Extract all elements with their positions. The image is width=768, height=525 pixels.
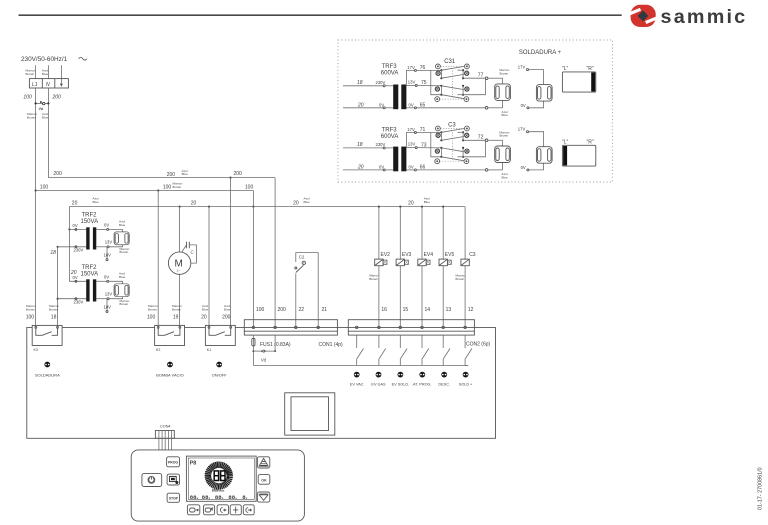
svg-text:Brown: Brown <box>120 302 129 306</box>
svg-text:20: 20 <box>293 200 299 206</box>
svg-text:13V: 13V <box>105 291 113 296</box>
svg-text:Brown: Brown <box>173 185 182 189</box>
svg-text:TRF3: TRF3 <box>382 128 398 134</box>
svg-text:EV5: EV5 <box>445 252 455 258</box>
svg-text:17V: 17V <box>407 127 415 132</box>
svg-text:EV4: EV4 <box>424 252 434 258</box>
svg-text:18V: 18V <box>104 305 112 310</box>
svg-text:Blue: Blue <box>42 72 48 76</box>
svg-text:230V: 230V <box>376 142 386 147</box>
svg-text:230V: 230V <box>74 248 84 253</box>
svg-text:Brown: Brown <box>148 307 157 311</box>
svg-text:C3: C3 <box>448 123 456 129</box>
svg-text:Blue: Blue <box>93 200 99 204</box>
svg-text:Blue: Blue <box>304 200 310 204</box>
svg-text:0V: 0V <box>73 275 78 280</box>
svg-text:C31: C31 <box>444 59 456 65</box>
svg-text:EV3: EV3 <box>402 252 412 258</box>
svg-text:0V: 0V <box>521 165 526 170</box>
svg-text:"L": "L" <box>562 140 569 146</box>
svg-text:Brown: Brown <box>500 134 509 138</box>
svg-text:20: 20 <box>408 200 414 206</box>
svg-text:CON2 (6p): CON2 (6p) <box>466 342 491 348</box>
svg-text:0V: 0V <box>409 102 414 107</box>
svg-text:L1: L1 <box>32 82 38 88</box>
svg-text:K1: K1 <box>207 348 211 352</box>
svg-text:230V/50-60Hz/1: 230V/50-60Hz/1 <box>21 56 68 63</box>
svg-text:PROG: PROG <box>168 461 178 465</box>
svg-text:72: 72 <box>478 135 484 141</box>
svg-text:ON/OFF: ON/OFF <box>212 373 228 378</box>
svg-text:Vd: Vd <box>261 358 267 363</box>
svg-text:0V: 0V <box>104 274 109 279</box>
svg-text:73: 73 <box>421 142 427 148</box>
svg-text:20: 20 <box>72 200 78 206</box>
svg-text:18: 18 <box>50 250 56 256</box>
svg-text:K3: K3 <box>34 348 38 352</box>
svg-text:18: 18 <box>51 315 57 321</box>
svg-text:66: 66 <box>420 164 426 170</box>
svg-text:17V: 17V <box>407 65 415 70</box>
svg-text:14: 14 <box>425 307 431 313</box>
svg-text:22: 22 <box>299 307 305 313</box>
svg-text:DESC.: DESC. <box>438 383 450 387</box>
svg-text:13V: 13V <box>408 142 416 147</box>
svg-text:21: 21 <box>322 307 328 313</box>
svg-text:200: 200 <box>167 172 176 178</box>
svg-text:100: 100 <box>163 185 172 191</box>
svg-text:13V: 13V <box>105 240 113 245</box>
svg-text:100: 100 <box>26 315 35 321</box>
svg-text:Blue: Blue <box>502 113 508 117</box>
svg-text:Blue: Blue <box>42 115 48 119</box>
svg-text:TRF2: TRF2 <box>82 213 98 219</box>
svg-text:16: 16 <box>381 307 387 313</box>
svg-text:CON4: CON4 <box>160 425 171 429</box>
svg-text:0V: 0V <box>379 164 384 169</box>
svg-text:EV VAC: EV VAC <box>350 383 364 387</box>
svg-text:100: 100 <box>40 185 49 191</box>
svg-text:sammic: sammic <box>661 6 748 28</box>
svg-text:100: 100 <box>245 185 254 191</box>
svg-text:600VA: 600VA <box>381 71 399 77</box>
svg-text:Brown: Brown <box>27 115 36 119</box>
svg-text:01-17- 2700861/0: 01-17- 2700861/0 <box>758 467 764 510</box>
svg-text:EV GAS: EV GAS <box>371 383 386 387</box>
svg-text:AT. PROG.: AT. PROG. <box>413 383 432 387</box>
svg-text:Brown: Brown <box>369 277 378 281</box>
svg-text:EV2: EV2 <box>381 252 391 258</box>
svg-text:Blue: Blue <box>202 307 208 311</box>
svg-text:230V: 230V <box>74 300 84 305</box>
svg-text:CON1 (4p): CON1 (4p) <box>319 342 344 348</box>
svg-text:150VA: 150VA <box>81 219 99 225</box>
svg-text:SOLD +: SOLD + <box>459 383 473 387</box>
svg-text:15: 15 <box>403 307 409 313</box>
svg-text:Brown: Brown <box>26 72 35 76</box>
svg-text:BOMBA VACIO: BOMBA VACIO <box>156 373 184 378</box>
svg-text:OK: OK <box>261 479 267 483</box>
svg-text:75: 75 <box>421 80 427 86</box>
svg-text:"L": "L" <box>562 66 569 72</box>
svg-text:1~: 1~ <box>177 269 181 273</box>
svg-text:600VA: 600VA <box>381 134 399 140</box>
svg-text:Brown: Brown <box>500 72 509 76</box>
svg-text:P8: P8 <box>190 460 197 466</box>
svg-text:Blue: Blue <box>224 307 230 311</box>
svg-text:C2: C2 <box>299 255 305 260</box>
svg-text:Blue: Blue <box>424 200 430 204</box>
svg-text:Blue: Blue <box>182 172 188 176</box>
svg-text:18V: 18V <box>104 253 112 258</box>
svg-text:STOP: STOP <box>169 496 179 500</box>
svg-text:19: 19 <box>173 315 179 321</box>
svg-text:12: 12 <box>468 307 474 313</box>
svg-text:200: 200 <box>222 315 231 321</box>
svg-text:200: 200 <box>278 307 287 313</box>
svg-text:230V: 230V <box>376 80 386 85</box>
svg-text:71: 71 <box>420 127 426 133</box>
svg-text:Brown: Brown <box>49 307 58 311</box>
svg-text:Brown: Brown <box>456 277 465 281</box>
svg-text:Brown: Brown <box>120 250 129 254</box>
svg-text:0V: 0V <box>104 222 109 227</box>
svg-text:EV SOLD.: EV SOLD. <box>392 383 410 387</box>
svg-text:76: 76 <box>420 65 426 71</box>
svg-text:100: 100 <box>256 307 265 313</box>
svg-text:888mbar: 888mbar <box>212 488 225 492</box>
svg-text:0V: 0V <box>379 102 384 107</box>
svg-text:77: 77 <box>478 73 484 79</box>
svg-text:13: 13 <box>446 307 452 313</box>
svg-text:18: 18 <box>357 80 363 86</box>
svg-text:17V: 17V <box>518 65 526 70</box>
svg-text:18: 18 <box>357 142 363 148</box>
svg-text:150VA: 150VA <box>81 271 99 277</box>
svg-text:100: 100 <box>23 95 32 101</box>
svg-text:13V: 13V <box>408 80 416 85</box>
svg-text:Vd: Vd <box>39 107 43 111</box>
svg-text:200: 200 <box>234 171 243 177</box>
svg-text:0V: 0V <box>409 164 414 169</box>
svg-text:SOLDADURA: SOLDADURA <box>35 373 60 378</box>
svg-text:Brown: Brown <box>26 307 35 311</box>
svg-text:K2: K2 <box>156 348 160 352</box>
svg-text:N: N <box>46 82 50 88</box>
svg-text:TRF3: TRF3 <box>382 64 398 70</box>
svg-text:Blue: Blue <box>119 275 125 279</box>
svg-text:"R": "R" <box>587 66 594 72</box>
svg-text:200: 200 <box>53 171 62 177</box>
svg-text:SOLDADURA +: SOLDADURA + <box>519 50 562 56</box>
svg-text:17V: 17V <box>518 127 526 132</box>
svg-text:C3: C3 <box>469 252 476 258</box>
svg-text:0V: 0V <box>73 223 78 228</box>
svg-text:"R": "R" <box>587 140 594 146</box>
svg-text:20: 20 <box>201 315 207 321</box>
svg-text:Blue: Blue <box>502 175 508 179</box>
svg-text:0V: 0V <box>521 103 526 108</box>
svg-text:Blue: Blue <box>119 223 125 227</box>
svg-text:20: 20 <box>357 164 364 170</box>
svg-text:20: 20 <box>357 102 364 108</box>
svg-text:Brown: Brown <box>172 307 181 311</box>
svg-text:20: 20 <box>191 200 197 206</box>
svg-text:200: 200 <box>52 95 62 101</box>
svg-text:100: 100 <box>147 315 156 321</box>
svg-text:65: 65 <box>420 102 426 108</box>
svg-text:TRF2: TRF2 <box>82 265 98 271</box>
